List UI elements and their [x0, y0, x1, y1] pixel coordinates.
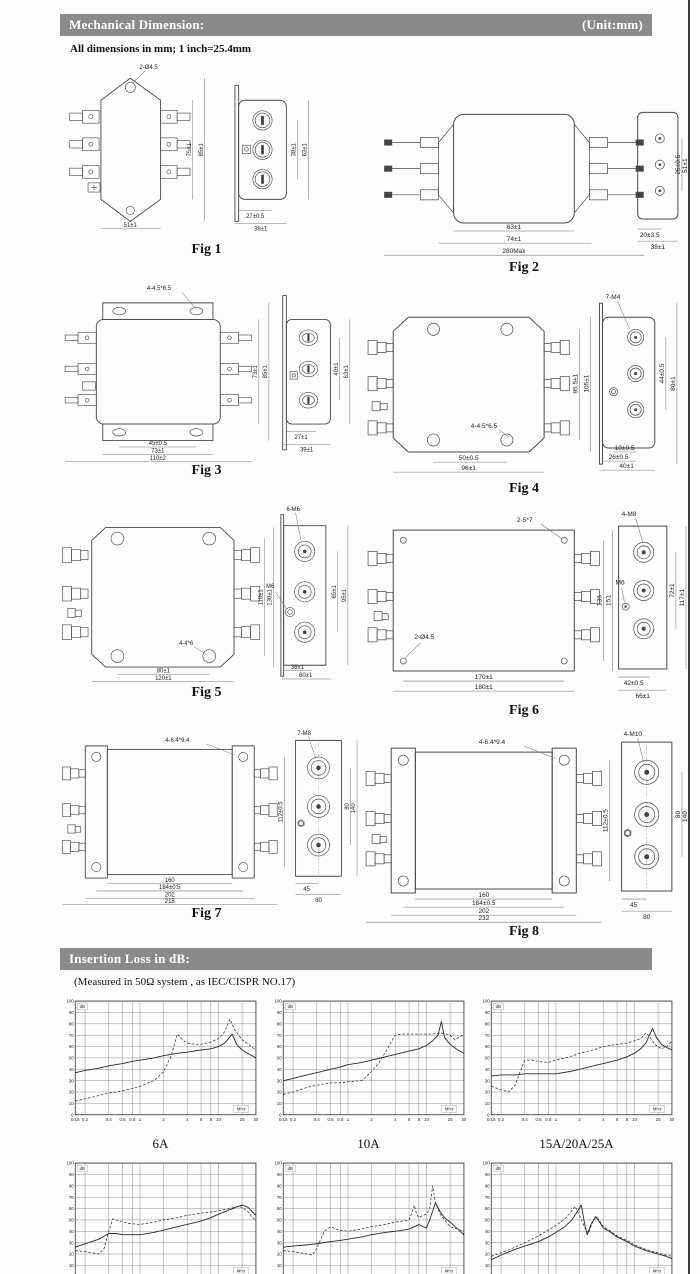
svg-text:100: 100 [66, 999, 74, 1004]
dim-label: 40±1 [334, 362, 340, 376]
svg-text:dB: dB [496, 1166, 501, 1171]
dim-label: 63±1 [507, 224, 522, 231]
dim-label: 4-4.5*6.5 [471, 423, 498, 430]
svg-text:90: 90 [277, 1172, 282, 1177]
fig7-drawing: 4-6.4*9.4 112±0.5 160 184±0.5 202 218 7-… [55, 722, 358, 910]
svg-text:40: 40 [485, 1067, 490, 1072]
dim-label: 25±0.5 [675, 154, 682, 174]
svg-text:40: 40 [485, 1229, 490, 1234]
figure-2: 63±1 74±1 280Max 25±0.5 51±1 20±3.5 38±1… [358, 57, 690, 278]
svg-text:dB: dB [288, 1004, 293, 1009]
svg-text:0.6: 0.6 [119, 1117, 126, 1122]
fig6-side-view [619, 527, 667, 670]
dim-label: 7-M8 [297, 731, 311, 737]
chart-cell-40a-50a: 01020304050607080901000.150.20.40.60.812… [266, 1158, 471, 1274]
datasheet-page: Mechanical Dimension: (Unit:mm) All dime… [0, 0, 700, 1274]
svg-text:60: 60 [485, 1206, 490, 1211]
svg-text:8: 8 [418, 1117, 421, 1122]
dim-label: 95.5±1 [572, 374, 579, 394]
fig5-front-view [62, 528, 259, 668]
svg-text:0.4: 0.4 [522, 1117, 529, 1122]
fig3-drawing: 4-4.5*6.5 73±1 85±1 [55, 279, 358, 467]
svg-text:20: 20 [277, 1252, 282, 1257]
dim-label: 27±0.5 [246, 214, 265, 220]
dim-label: 80 [345, 802, 351, 809]
svg-text:60: 60 [485, 1044, 490, 1049]
svg-text:40: 40 [69, 1067, 74, 1072]
dimension-note: All dimensions in mm; 1 inch=25.4mm [70, 43, 700, 55]
svg-text:70: 70 [277, 1195, 282, 1200]
svg-text:8: 8 [626, 1117, 629, 1122]
chart-cell-15a-20a-25a: 01020304050607080901000.150.20.40.60.812… [474, 996, 679, 1158]
dim-label: 60±1 [299, 674, 313, 680]
svg-text:100: 100 [66, 1161, 74, 1166]
svg-text:6: 6 [408, 1117, 411, 1122]
svg-text:4: 4 [394, 1117, 397, 1122]
svg-text:50: 50 [69, 1055, 74, 1060]
fig1-front-view [70, 78, 190, 221]
dim-label: 85±1 [199, 143, 205, 157]
dim-label: 80 [315, 898, 322, 904]
svg-text:50: 50 [485, 1217, 490, 1222]
svg-text:70: 70 [69, 1195, 74, 1200]
dim-label: 112±0.5 [279, 800, 285, 822]
svg-text:10: 10 [216, 1117, 221, 1122]
dim-label: 80±1 [670, 376, 677, 391]
svg-text:dB: dB [80, 1166, 85, 1171]
svg-text:20: 20 [485, 1090, 490, 1095]
svg-text:0.15: 0.15 [279, 1117, 288, 1122]
figure-1: 2-Ø4.5 75±1 85±1 51±1 [55, 57, 358, 278]
dim-label: 80 [643, 914, 651, 921]
svg-text:0.8: 0.8 [337, 1117, 344, 1122]
svg-text:10: 10 [632, 1117, 637, 1122]
svg-text:MHz: MHz [237, 1269, 246, 1274]
dim-label: 75±1 [187, 143, 193, 157]
dim-label: 151 [606, 595, 613, 606]
svg-text:MHz: MHz [445, 1269, 454, 1274]
dim-label: 160 [165, 877, 176, 883]
dim-label: 95±1 [342, 589, 348, 603]
section-header-mechanical: Mechanical Dimension: (Unit:mm) [60, 14, 652, 36]
dim-label: 80±1 [157, 669, 171, 675]
svg-text:0.4: 0.4 [106, 1117, 113, 1122]
svg-text:10: 10 [485, 1101, 490, 1106]
dim-label: 2-Ø4.5 [139, 65, 158, 71]
fig8-front-view [366, 748, 601, 893]
dim-label: 105±1 [583, 374, 590, 392]
svg-text:50: 50 [485, 1055, 490, 1060]
svg-text:0.2: 0.2 [82, 1117, 89, 1122]
svg-text:90: 90 [277, 1010, 282, 1015]
dim-label: 202 [478, 908, 489, 915]
dim-label: 85±1 [263, 365, 269, 379]
figure-7: 4-6.4*9.4 112±0.5 160 184±0.5 202 218 7-… [55, 721, 358, 942]
svg-text:0.2: 0.2 [498, 1117, 505, 1122]
svg-text:0.6: 0.6 [327, 1117, 334, 1122]
dim-label: 4-M8 [622, 512, 637, 519]
svg-text:70: 70 [69, 1033, 74, 1038]
dim-label: 4-4*6 [179, 642, 194, 648]
fig6-drawing: 2-5*7 2-Ø4.5 136 151 170±1 180±1 4-M8 M6 [358, 500, 690, 706]
page-edge-line [688, 0, 690, 1274]
svg-text:2: 2 [370, 1117, 373, 1122]
svg-text:2: 2 [578, 1117, 581, 1122]
svg-text:30: 30 [461, 1117, 466, 1122]
dim-label: 4-6.4*9.4 [479, 739, 506, 746]
fig2-drawing: 63±1 74±1 280Max 25±0.5 51±1 20±3.5 38±1 [358, 58, 690, 264]
svg-text:dB: dB [288, 1166, 293, 1171]
fig8-side-view [622, 742, 672, 891]
svg-text:50: 50 [69, 1217, 74, 1222]
dim-label: 112±0.5 [602, 808, 609, 831]
fig4-side-view [599, 303, 654, 464]
svg-text:30: 30 [669, 1117, 674, 1122]
chart-canvas: 01020304050607080901000.150.20.40.60.812… [474, 1158, 679, 1274]
svg-text:0.2: 0.2 [290, 1117, 297, 1122]
svg-text:0.8: 0.8 [545, 1117, 552, 1122]
svg-text:70: 70 [485, 1033, 490, 1038]
chart-plot: 01020304050607080901000.150.20.40.60.812… [266, 996, 469, 1130]
svg-text:40: 40 [69, 1229, 74, 1234]
figure-4: 4-4.5*6.5 95.5±1 105±1 50±0.5 96±1 7-M4 … [358, 278, 690, 499]
fig4-drawing: 4-4.5*6.5 95.5±1 105±1 50±0.5 96±1 7-M4 … [358, 279, 690, 485]
dim-label: 73±1 [253, 365, 259, 379]
svg-text:50: 50 [277, 1217, 282, 1222]
svg-text:0.8: 0.8 [129, 1117, 136, 1122]
figure-caption: Fig 3 [55, 463, 358, 479]
svg-text:20: 20 [656, 1117, 661, 1122]
svg-text:80: 80 [69, 1183, 74, 1188]
dim-label: 110±1 [259, 589, 265, 606]
dim-label: 4-6.4*9.4 [165, 738, 190, 744]
section-header-insertion-loss: Insertion Loss in dB: [60, 948, 652, 970]
section-title: Insertion Loss in dB: [69, 951, 190, 967]
svg-text:50: 50 [277, 1055, 282, 1060]
dim-label: 184±0.5 [159, 885, 181, 891]
svg-text:6: 6 [200, 1117, 203, 1122]
dim-label: 218 [165, 899, 176, 905]
svg-text:80: 80 [277, 1183, 282, 1188]
figure-caption: Fig 7 [55, 906, 358, 922]
chart-cell-100a-150a-200a: 01020304050607080901000.150.20.40.60.812… [474, 1158, 679, 1274]
dim-label: 66±1 [635, 694, 650, 701]
svg-text:90: 90 [69, 1010, 74, 1015]
dim-label: 40±1 [619, 463, 634, 470]
svg-text:1: 1 [347, 1117, 350, 1122]
fig5-drawing: 4-4*6 110±1 130±1 80±1 120±1 6-M6 M6 [55, 500, 358, 688]
fig8-drawing: 4-6.4*9.4 112±0.5 160 184±0.5 202 232 4-… [358, 722, 690, 928]
svg-text:60: 60 [277, 1044, 282, 1049]
chart-plot: 01020304050607080901000.150.20.40.60.812… [58, 996, 261, 1130]
dim-label: 280Max [502, 248, 526, 255]
dim-label: 45 [630, 902, 638, 909]
fig3-side-view [283, 296, 331, 450]
svg-text:30: 30 [69, 1240, 74, 1245]
svg-text:10: 10 [277, 1263, 282, 1268]
fig2-front-view [384, 114, 644, 223]
dim-label: 4-M10 [624, 731, 643, 738]
dim-label: 38±1 [292, 143, 298, 157]
dim-label: 110±2 [150, 456, 167, 462]
dim-label: 202 [165, 892, 176, 898]
svg-text:10: 10 [277, 1101, 282, 1106]
dim-label: 170±1 [475, 675, 493, 682]
dim-label: 140 [351, 802, 357, 813]
dim-label: 45±0.5 [149, 441, 168, 447]
svg-text:dB: dB [496, 1004, 501, 1009]
svg-text:20: 20 [69, 1252, 74, 1257]
dim-label: 117±1 [679, 589, 686, 607]
dim-label: 130±1 [268, 589, 274, 606]
fig6-front-view [368, 531, 599, 672]
dim-label: 160 [478, 892, 489, 899]
dim-label: 80 [675, 810, 682, 818]
dim-label: 10±0.5 [615, 445, 635, 452]
svg-text:0.15: 0.15 [487, 1117, 496, 1122]
svg-text:MHz: MHz [653, 1107, 662, 1112]
svg-text:2: 2 [162, 1117, 165, 1122]
dim-label: 20±3.5 [640, 232, 660, 239]
dim-label: 184±0.5 [472, 900, 496, 907]
svg-text:8: 8 [210, 1117, 213, 1122]
figure-caption: Fig 5 [55, 685, 358, 701]
svg-text:80: 80 [485, 1021, 490, 1026]
svg-text:MHz: MHz [653, 1269, 662, 1274]
chart-plot: 01020304050607080901000.150.20.40.60.812… [58, 1158, 261, 1274]
section-title: Mechanical Dimension: [69, 17, 204, 33]
svg-text:20: 20 [485, 1252, 490, 1257]
chart-caption: 15A/20A/25A [474, 1136, 679, 1152]
dim-label: 6-M6 [286, 507, 300, 513]
svg-text:40: 40 [277, 1067, 282, 1072]
chart-cell-10a: 01020304050607080901000.150.20.40.60.812… [266, 996, 471, 1158]
figure-caption: Fig 8 [358, 924, 690, 940]
svg-text:100: 100 [482, 999, 490, 1004]
dim-label: 27±1 [294, 435, 308, 441]
dim-label: 96±1 [461, 465, 476, 472]
dim-label: 136 [596, 595, 603, 606]
svg-text:60: 60 [69, 1044, 74, 1049]
dim-label: 232 [478, 915, 489, 922]
svg-text:10: 10 [69, 1101, 74, 1106]
dim-label: 39±1 [300, 448, 314, 454]
svg-text:90: 90 [69, 1172, 74, 1177]
svg-text:MHz: MHz [237, 1107, 246, 1112]
svg-text:30: 30 [485, 1240, 490, 1245]
svg-text:90: 90 [485, 1172, 490, 1177]
dim-label: 65±1 [332, 585, 338, 599]
dim-label: 73±1 [151, 449, 165, 455]
chart-canvas: 01020304050607080901000.150.20.40.60.812… [58, 996, 263, 1135]
chart-cell-30a: 01020304050607080901000.150.20.40.60.812… [58, 1158, 263, 1274]
fig7-side-view [296, 740, 342, 876]
svg-text:20: 20 [448, 1117, 453, 1122]
dim-label: 2-Ø4.5 [414, 634, 434, 641]
svg-text:30: 30 [485, 1078, 490, 1083]
svg-text:70: 70 [277, 1033, 282, 1038]
dim-label: 50±0.5 [459, 455, 479, 462]
chart-canvas: 01020304050607080901000.150.20.40.60.812… [474, 996, 679, 1135]
dim-label: 2-5*7 [517, 518, 533, 525]
svg-text:0.4: 0.4 [314, 1117, 321, 1122]
svg-text:100: 100 [274, 1161, 282, 1166]
chart-caption: 6A [58, 1136, 263, 1152]
svg-text:10: 10 [69, 1263, 74, 1268]
fig1-side-view [235, 86, 286, 222]
svg-text:80: 80 [277, 1021, 282, 1026]
dim-label: 180±1 [475, 685, 493, 692]
svg-text:100: 100 [482, 1161, 490, 1166]
chart-plot: 01020304050607080901000.150.20.40.60.812… [474, 1158, 677, 1274]
dim-label: 44±0.5 [659, 363, 666, 383]
svg-text:30: 30 [69, 1078, 74, 1083]
svg-text:6: 6 [616, 1117, 619, 1122]
figure-6: 2-5*7 2-Ø4.5 136 151 170±1 180±1 4-M8 M6 [358, 499, 690, 720]
svg-text:40: 40 [277, 1229, 282, 1234]
dim-label: 72±1 [669, 583, 676, 598]
svg-text:10: 10 [424, 1117, 429, 1122]
fig1-drawing: 2-Ø4.5 75±1 85±1 51±1 [55, 58, 358, 246]
svg-text:4: 4 [186, 1117, 189, 1122]
dim-label: 42±0.5 [624, 681, 644, 688]
fig3-front-view [65, 303, 251, 441]
chart-canvas: 01020304050607080901000.150.20.40.60.812… [58, 1158, 263, 1274]
svg-text:30: 30 [277, 1240, 282, 1245]
svg-text:20: 20 [240, 1117, 245, 1122]
dim-label: 120±1 [155, 676, 172, 682]
svg-text:10: 10 [485, 1263, 490, 1268]
svg-text:20: 20 [277, 1090, 282, 1095]
fig4-front-view [368, 317, 569, 452]
svg-text:100: 100 [274, 999, 282, 1004]
chart-cell-6a: 01020304050607080901000.150.20.40.60.812… [58, 996, 263, 1158]
svg-text:4: 4 [602, 1117, 605, 1122]
dim-label: 45 [303, 887, 310, 893]
svg-text:70: 70 [485, 1195, 490, 1200]
dim-label: M6 [616, 580, 625, 587]
svg-text:dB: dB [80, 1004, 85, 1009]
figure-3: 4-4.5*6.5 73±1 85±1 [55, 278, 358, 499]
figure-caption: Fig 4 [358, 481, 690, 497]
svg-text:20: 20 [69, 1090, 74, 1095]
chart-canvas: 01020304050607080901000.150.20.40.60.812… [266, 996, 471, 1135]
svg-text:80: 80 [485, 1183, 490, 1188]
dim-label: 26±0.5 [609, 454, 629, 461]
svg-text:90: 90 [485, 1010, 490, 1015]
chart-canvas: 01020304050607080901000.150.20.40.60.812… [266, 1158, 471, 1274]
fig5-side-view [281, 515, 326, 677]
svg-text:30: 30 [277, 1078, 282, 1083]
chart-plot: 01020304050607080901000.150.20.40.60.812… [266, 1158, 469, 1274]
measurement-note: (Measured in 50Ω system , as IEC/CISPR N… [74, 976, 700, 988]
figure-8: 4-6.4*9.4 112±0.5 160 184±0.5 202 232 4-… [358, 721, 690, 942]
dim-label: M6 [266, 585, 275, 591]
figure-5: 4-4*6 110±1 130±1 80±1 120±1 6-M6 M6 [55, 499, 358, 720]
figure-caption: Fig 2 [358, 260, 690, 276]
chart-plot: 01020304050607080901000.150.20.40.60.812… [474, 996, 677, 1130]
dim-label: 63±1 [344, 365, 350, 379]
svg-text:80: 80 [69, 1021, 74, 1026]
insertion-loss-charts: 01020304050607080901000.150.20.40.60.812… [58, 996, 700, 1274]
svg-text:0.15: 0.15 [71, 1117, 80, 1122]
svg-text:1: 1 [139, 1117, 142, 1122]
dim-label: 7-M4 [605, 294, 620, 301]
figure-caption: Fig 1 [55, 242, 358, 258]
dim-label: 4-4.5*6.5 [147, 286, 172, 292]
svg-text:1: 1 [555, 1117, 558, 1122]
svg-text:60: 60 [277, 1206, 282, 1211]
svg-text:60: 60 [69, 1206, 74, 1211]
figures-grid: 2-Ø4.5 75±1 85±1 51±1 [55, 57, 700, 942]
dim-label: 38±1 [254, 227, 268, 233]
dim-label: 74±1 [507, 236, 522, 243]
svg-text:0.6: 0.6 [535, 1117, 542, 1122]
dim-label: 36±1 [291, 665, 305, 671]
dim-label: 63±1 [303, 143, 309, 157]
figure-caption: Fig 6 [358, 703, 690, 719]
dim-label: 38±1 [651, 244, 666, 251]
fig7-front-view [62, 746, 277, 878]
chart-caption: 10A [266, 1136, 471, 1152]
svg-text:30: 30 [253, 1117, 258, 1122]
svg-text:MHz: MHz [445, 1107, 454, 1112]
dim-label: 51±1 [124, 223, 138, 229]
unit-label: (Unit:mm) [582, 17, 643, 33]
